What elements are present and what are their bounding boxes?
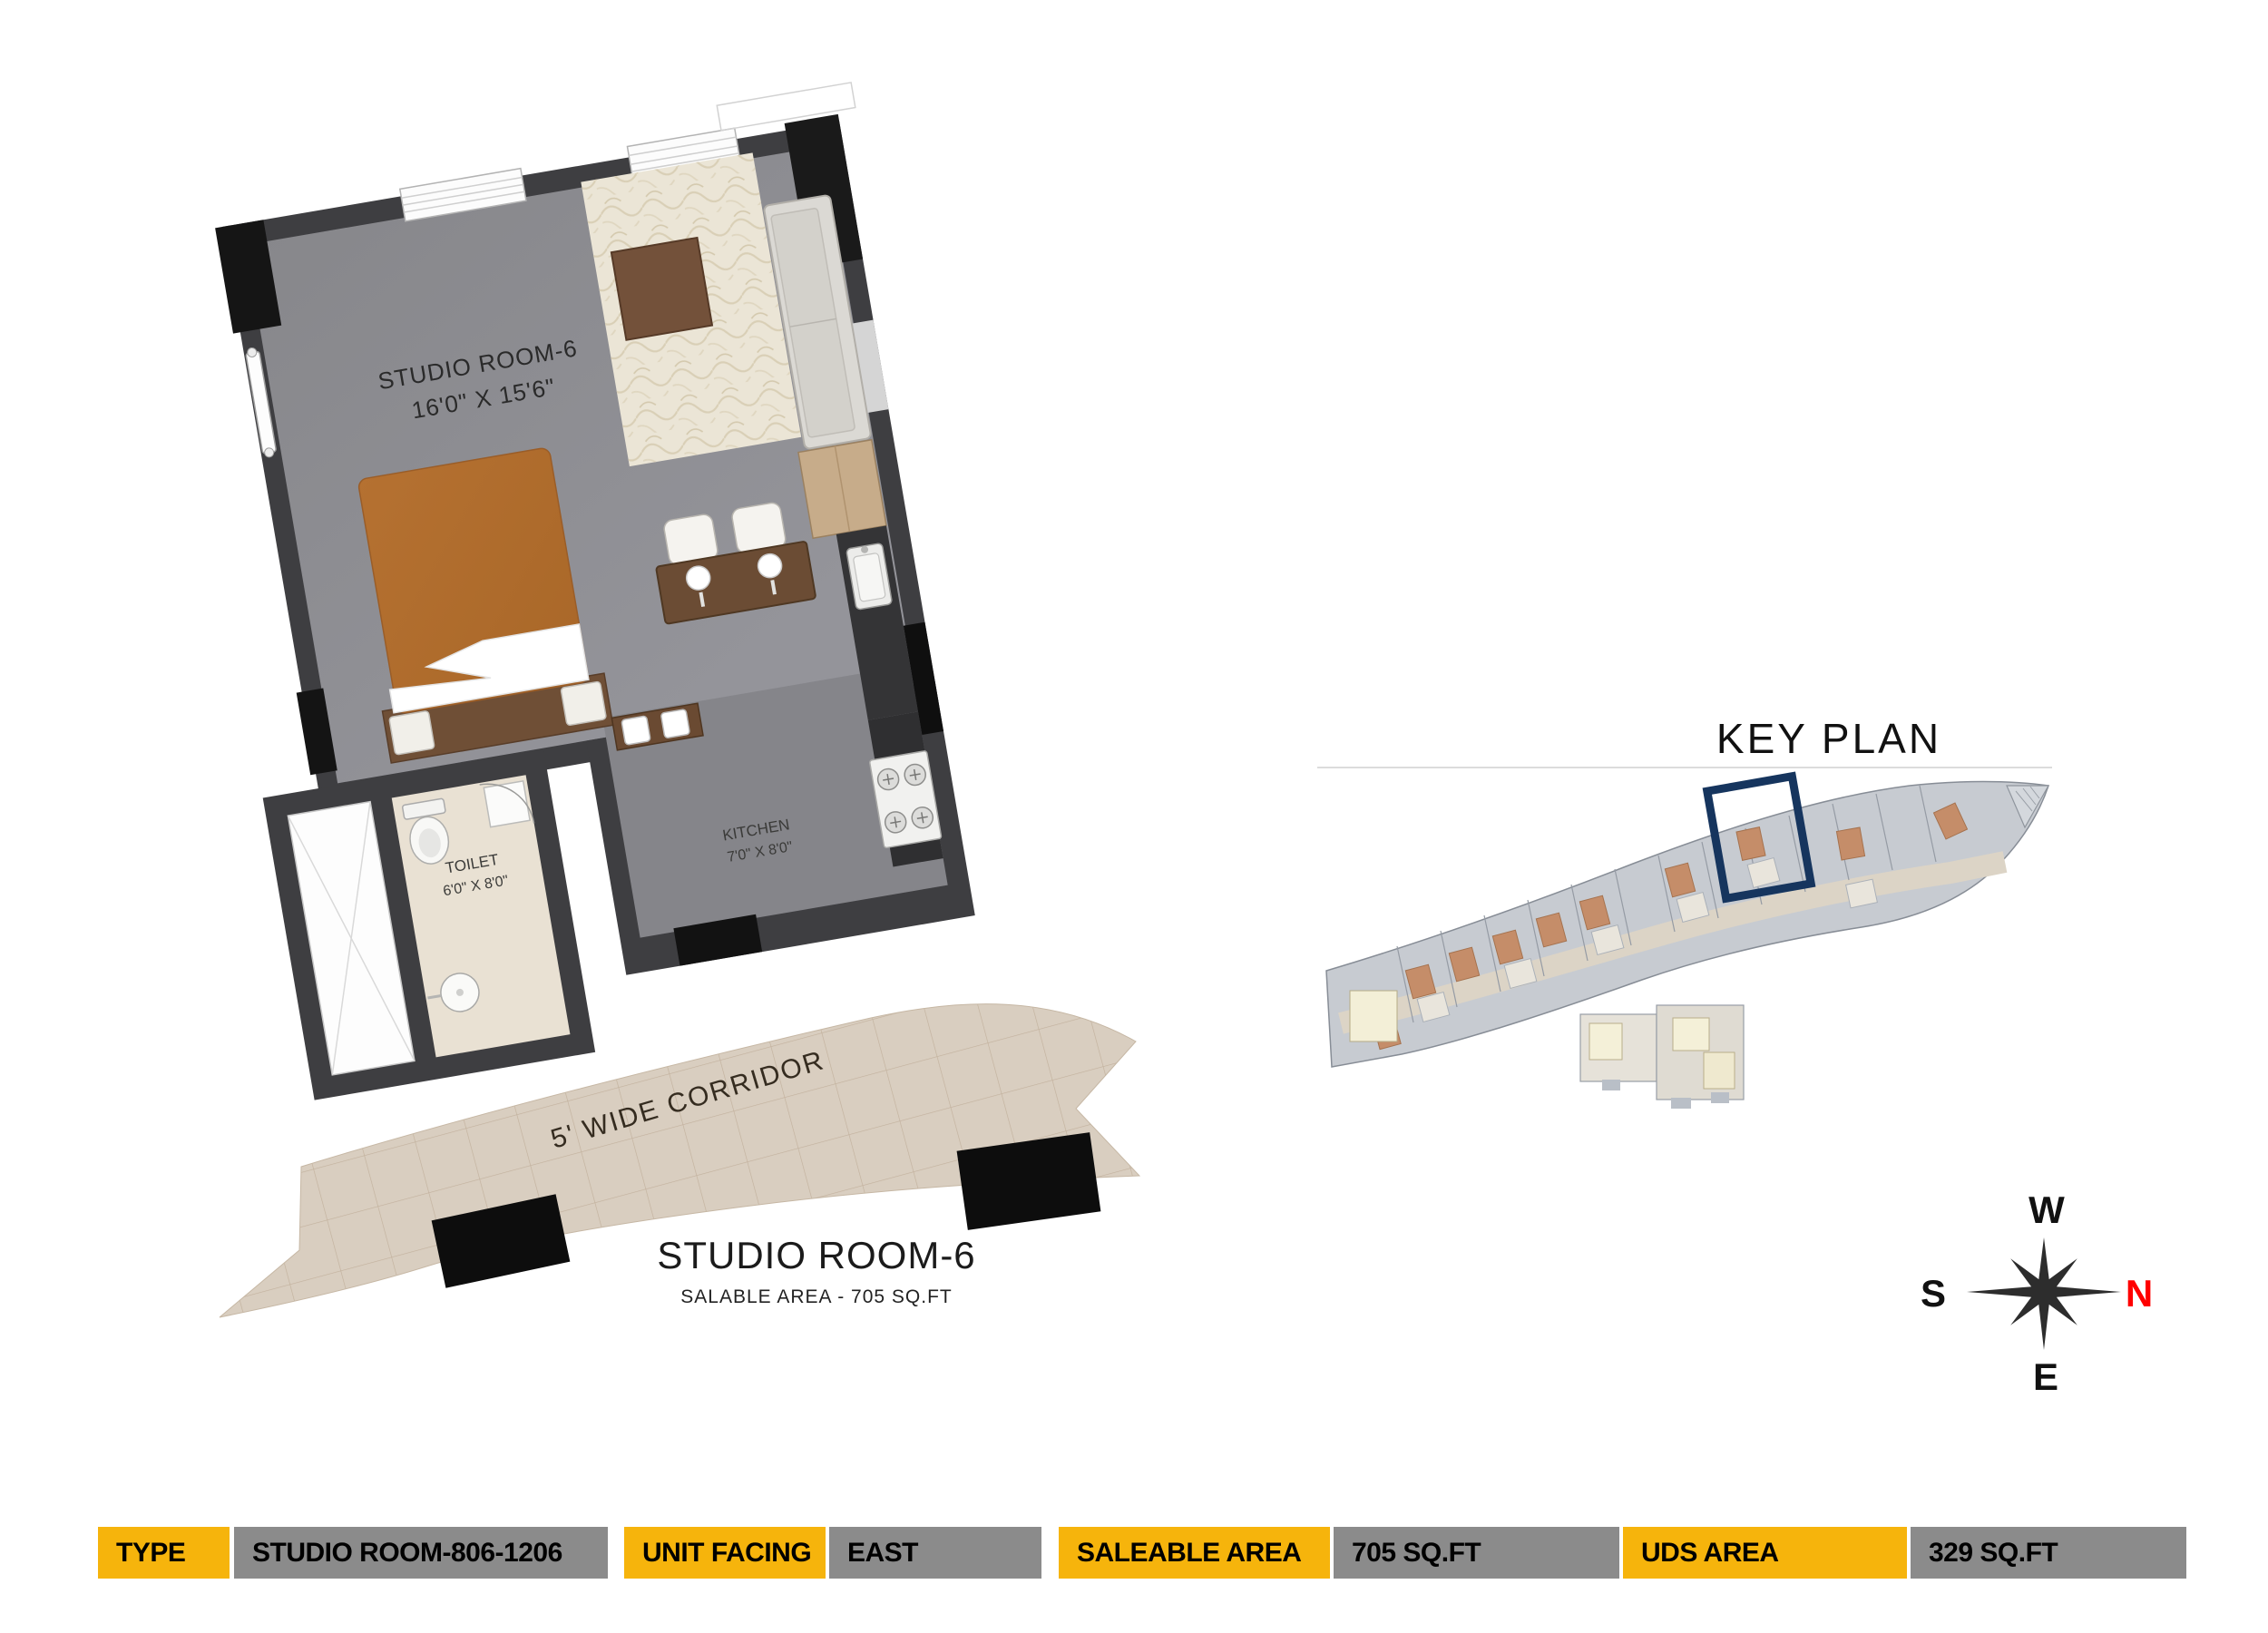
key-plan-left-room bbox=[1350, 991, 1397, 1041]
nightstand-left bbox=[389, 710, 435, 755]
compass-east-label: E bbox=[2033, 1355, 2058, 1398]
spec-unit-facing-value: EAST bbox=[829, 1527, 1041, 1579]
nightstand-right bbox=[561, 681, 606, 726]
plan-subtitle: SALABLE AREA - 705 SQ.FT bbox=[680, 1286, 952, 1307]
compass-star bbox=[1967, 1237, 2121, 1350]
spec-saleable-area-value: 705 SQ.FT bbox=[1334, 1527, 1619, 1579]
compass-north-label: N bbox=[2126, 1272, 2153, 1315]
wardrobe bbox=[798, 440, 886, 538]
studio-unit: STUDIO ROOM-6 16'0" X 15'6" TOILET 6'0" … bbox=[161, 83, 1004, 1100]
coffee-table bbox=[611, 238, 712, 340]
key-plan-lift-core bbox=[1580, 1005, 1744, 1109]
plan-title: STUDIO ROOM-6 bbox=[657, 1234, 975, 1276]
compass-west-label: W bbox=[2028, 1188, 2065, 1231]
spec-type-label: TYPE bbox=[98, 1527, 230, 1579]
plan-canvas: STUDIO ROOM-6 16'0" X 15'6" TOILET 6'0" … bbox=[0, 0, 2268, 1633]
compass: W S N E bbox=[1921, 1188, 2153, 1398]
key-plan-title: KEY PLAN bbox=[1716, 715, 1941, 762]
spec-uds-area-value: 329 SQ.FT bbox=[1911, 1527, 2186, 1579]
key-plan: KEY PLAN bbox=[1317, 715, 2052, 1109]
spec-saleable-area-label: SALEABLE AREA bbox=[1059, 1527, 1330, 1579]
spec-type-value: STUDIO ROOM-806-1206 bbox=[234, 1527, 608, 1579]
spec-uds-area-label: UDS AREA bbox=[1623, 1527, 1907, 1579]
floorplan-sheet: STUDIO ROOM-6 16'0" X 15'6" TOILET 6'0" … bbox=[0, 0, 2268, 1633]
spec-unit-facing-label: UNIT FACING bbox=[624, 1527, 826, 1579]
compass-south-label: S bbox=[1921, 1272, 1946, 1315]
